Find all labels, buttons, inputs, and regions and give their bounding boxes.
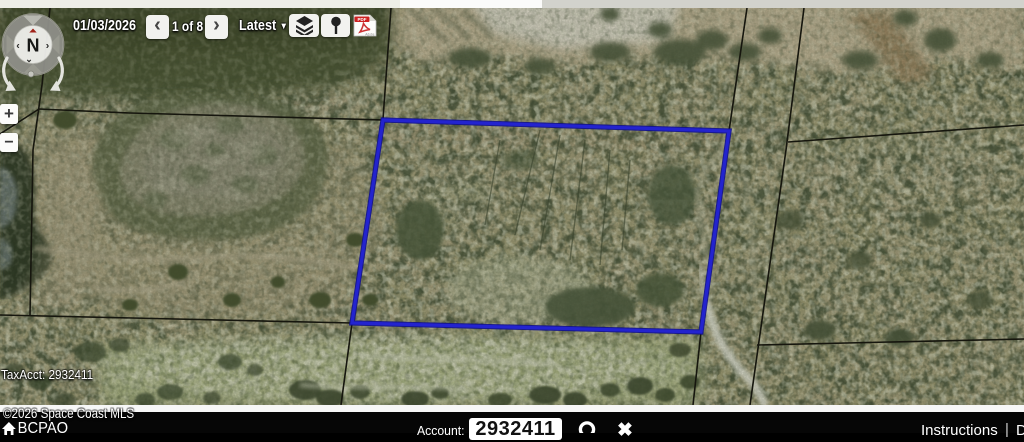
svg-text:PDF: PDF — [358, 17, 367, 22]
svg-text:⌄: ⌄ — [25, 54, 33, 64]
svg-text:Adobe: Adobe — [365, 33, 374, 37]
svg-text:‹: ‹ — [16, 40, 20, 52]
svg-text:N: N — [27, 36, 40, 56]
svg-text:›: › — [46, 40, 50, 52]
